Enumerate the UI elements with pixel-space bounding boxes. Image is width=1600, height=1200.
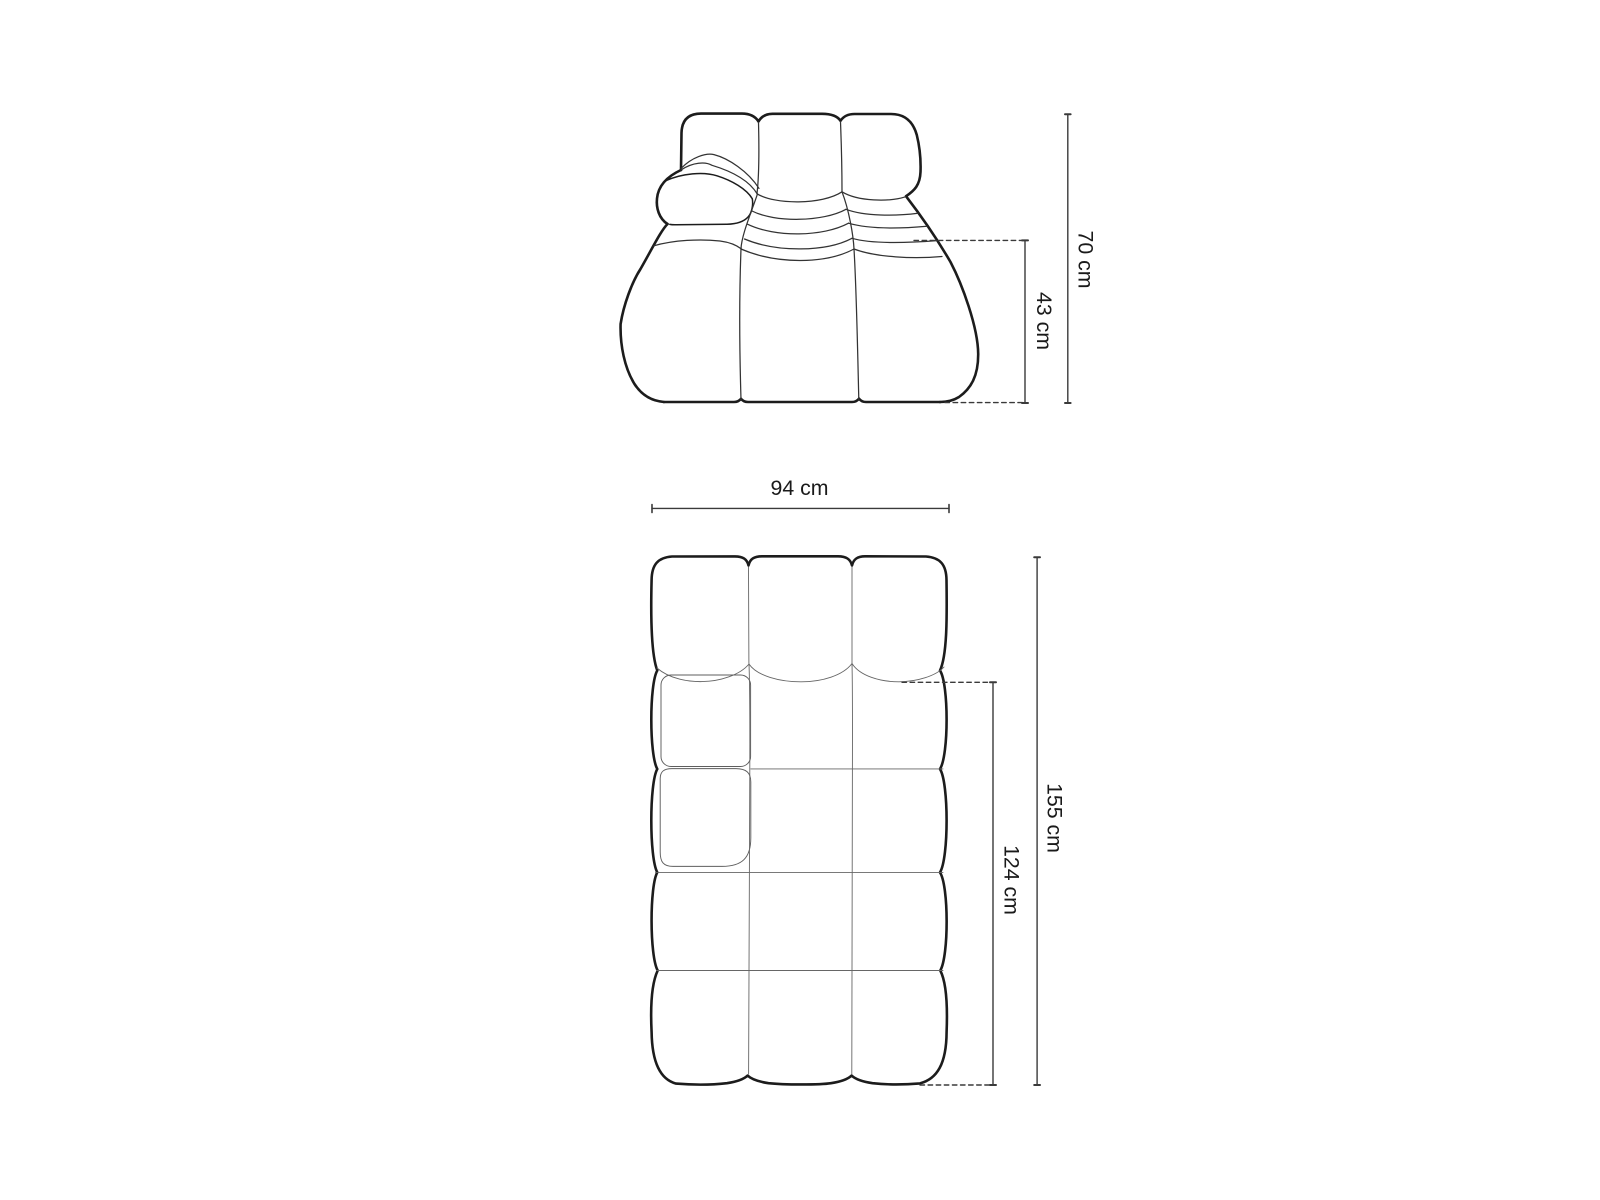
svg-text:70 cm: 70 cm xyxy=(1074,231,1098,289)
svg-text:124 cm: 124 cm xyxy=(1000,845,1024,915)
svg-text:94 cm: 94 cm xyxy=(771,476,829,500)
svg-text:155 cm: 155 cm xyxy=(1043,783,1067,853)
svg-text:43 cm: 43 cm xyxy=(1032,292,1056,350)
